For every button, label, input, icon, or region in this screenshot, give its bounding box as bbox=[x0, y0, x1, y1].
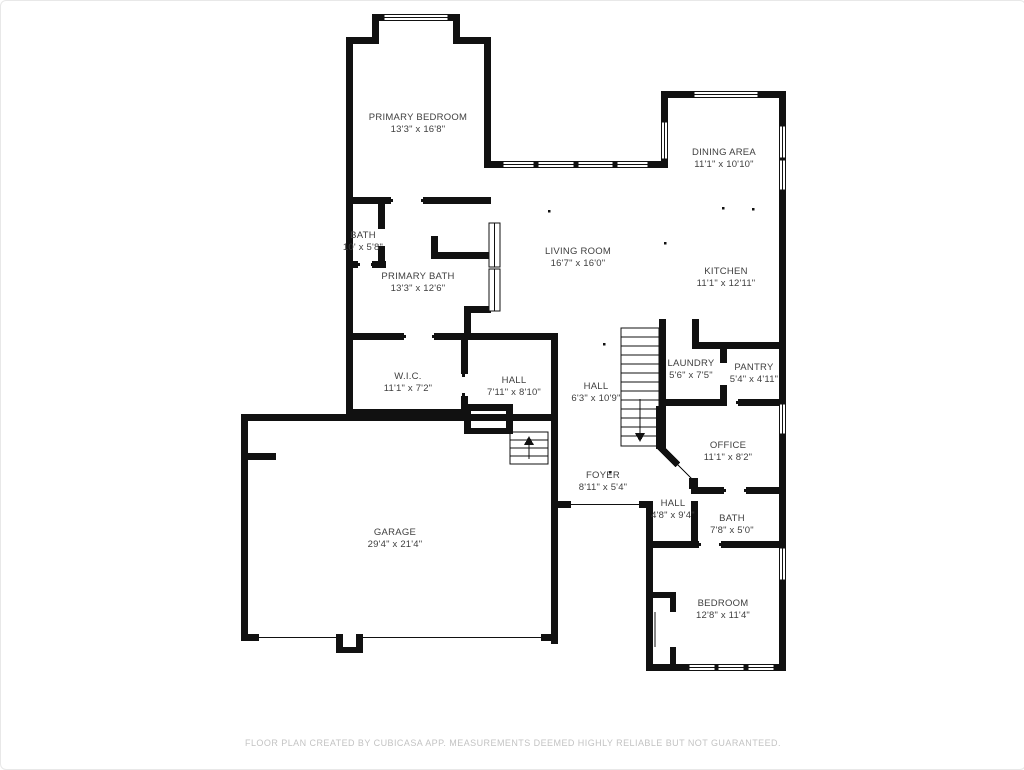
stairs-main bbox=[621, 328, 659, 446]
floor-plan-page: PRIMARY BEDROOM 13'3" x 16'8" BATH 10' x… bbox=[0, 0, 1024, 770]
floor-plan-drawing bbox=[1, 1, 1024, 769]
disclaimer-text: FLOOR PLAN CREATED BY CUBICASA APP. MEAS… bbox=[1, 738, 1024, 748]
walls bbox=[241, 14, 786, 671]
stairs-up-arrow bbox=[524, 436, 534, 445]
opening-lines bbox=[259, 408, 692, 648]
stairs-down-arrow bbox=[635, 433, 645, 442]
angled-wall bbox=[659, 446, 678, 465]
office-door-line bbox=[678, 465, 692, 479]
